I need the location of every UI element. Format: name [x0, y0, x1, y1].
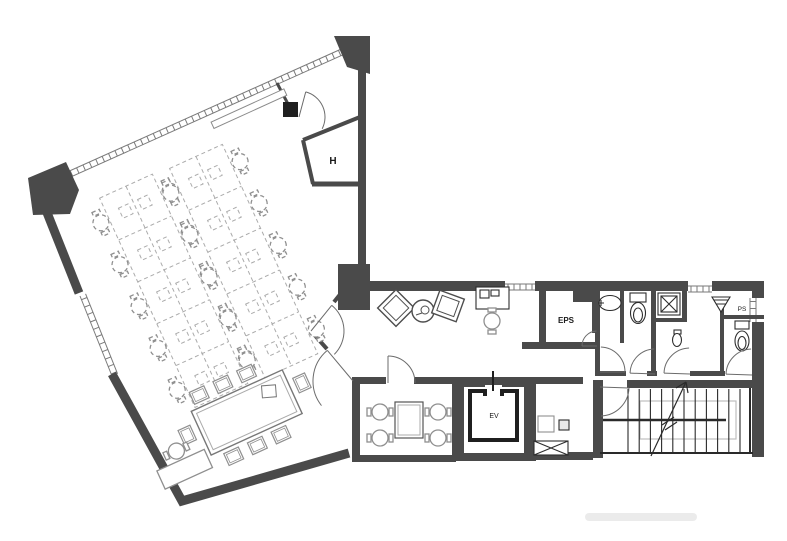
- door-jamb: [283, 102, 298, 117]
- h-room-wall: [303, 140, 313, 184]
- office-chair: [177, 220, 202, 250]
- office-chair: [367, 404, 393, 420]
- meeting-chair: [271, 425, 291, 443]
- office-chair: [227, 146, 252, 176]
- door-swing: [664, 348, 690, 374]
- office-right-wall: [358, 40, 366, 266]
- meeting-chair: [224, 447, 244, 465]
- door-swing: [388, 356, 415, 383]
- meeting-room-wall: [414, 377, 454, 384]
- office-chair: [126, 291, 151, 321]
- office-chair: [165, 375, 190, 405]
- small-meeting-room: [395, 402, 423, 438]
- meeting-room-wall: [352, 377, 386, 384]
- lounge-table: [412, 300, 434, 322]
- elevator-door-tab: [483, 389, 487, 396]
- service-room-wall: [536, 377, 583, 384]
- office-chair: [285, 272, 310, 302]
- small-meeting-table-inner: [398, 405, 420, 435]
- floor-plan-page: EPS EV H PS: [0, 0, 787, 541]
- office-chair: [215, 304, 240, 334]
- lounge-chair: [378, 290, 415, 327]
- ps-closet-wall: [722, 315, 764, 319]
- eps-wall: [539, 289, 546, 349]
- window-wall-top: [36, 46, 350, 191]
- door-swing: [600, 387, 629, 416]
- service-room-wall: [593, 380, 603, 458]
- doors: [299, 92, 752, 416]
- elevator-label: EV: [489, 413, 499, 420]
- h-shaft-label: H: [329, 156, 336, 167]
- lounge-chair: [432, 290, 465, 321]
- door-swing: [726, 349, 752, 375]
- office-chair: [266, 230, 291, 260]
- office-chair: [158, 178, 183, 208]
- office-chair: [145, 333, 170, 363]
- reception-desk-group: [476, 287, 509, 309]
- h-room-wall: [303, 117, 360, 140]
- office-chair: [425, 430, 451, 446]
- corridor-top-wall: [535, 281, 688, 291]
- partition: [682, 288, 687, 322]
- column-junction: [338, 264, 370, 310]
- door-swing: [299, 92, 325, 129]
- meeting-chair: [293, 373, 311, 393]
- partition: [620, 289, 624, 343]
- meeting-chair: [213, 375, 233, 393]
- service-equipment: [534, 416, 569, 455]
- meeting-chair: [247, 436, 267, 454]
- toilet-2: [735, 321, 749, 351]
- partition: [656, 318, 684, 322]
- vent-triangle-icon: [712, 297, 730, 312]
- office-chair: [484, 308, 500, 334]
- floor-plan-drawing: EPS EV H PS: [0, 0, 787, 541]
- table-item-icon: [261, 385, 276, 398]
- window-wall-left: [80, 294, 118, 376]
- office-chair: [246, 188, 271, 218]
- meeting-room-wall: [352, 377, 360, 462]
- meeting-room-wall: [352, 455, 456, 462]
- stairwell: [600, 382, 753, 456]
- office-chair: [304, 314, 329, 344]
- office-chair: [196, 262, 221, 292]
- office-chair: [367, 430, 393, 446]
- toilet-1: [630, 293, 646, 324]
- reception-keyboard-icon: [491, 290, 499, 296]
- office-chair: [88, 208, 113, 238]
- elevator-door-tab: [500, 389, 504, 396]
- urinal: [673, 330, 682, 347]
- door-swing: [313, 350, 353, 405]
- reception-monitor-icon: [480, 290, 489, 298]
- stair-wall: [627, 380, 753, 388]
- eps-label: EPS: [558, 316, 575, 325]
- scan-artifact: [585, 513, 697, 521]
- workstation-benches: [84, 136, 333, 417]
- office-chair: [107, 250, 132, 280]
- partition: [690, 371, 725, 376]
- right-wall: [752, 322, 764, 457]
- office-chair: [425, 404, 451, 420]
- ps-label: PS: [738, 306, 747, 313]
- window-corridor-2: [688, 286, 712, 292]
- right-wall: [752, 281, 764, 298]
- washbasin: [598, 296, 621, 311]
- partition: [651, 283, 656, 376]
- mop-sink: [658, 293, 680, 315]
- door-swing: [600, 347, 625, 372]
- eps-column: [573, 288, 595, 302]
